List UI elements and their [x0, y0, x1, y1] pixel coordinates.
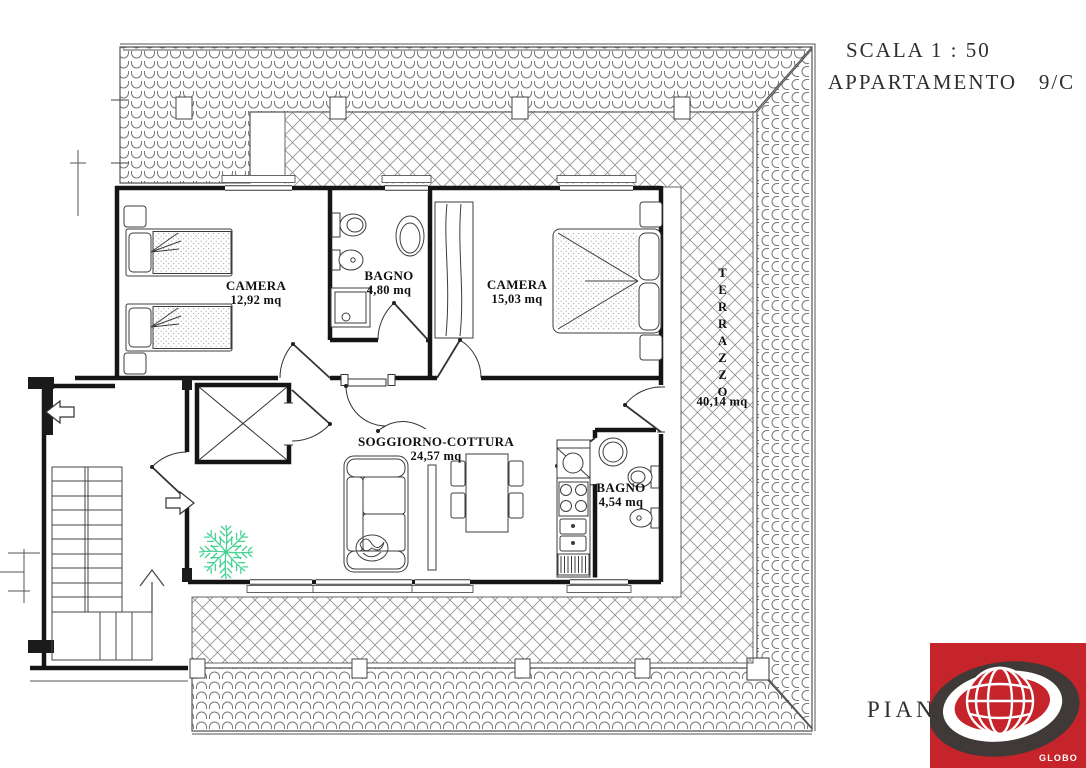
arrow-right-icon [166, 492, 194, 514]
room-name: CAMERA [487, 277, 547, 292]
wardrobe [435, 202, 473, 338]
globe-icon [967, 668, 1033, 734]
globo-logo-text: GLOBO [1039, 753, 1078, 763]
room-label-camera1: CAMERA 12,92 mq [226, 278, 286, 308]
sofa [344, 456, 408, 572]
door-bagno1 [378, 301, 428, 340]
single-beds [124, 206, 232, 374]
double-bed [553, 202, 662, 360]
direction-arrows [46, 401, 194, 514]
room-area: 15,03 mq [487, 292, 547, 307]
roof-band-right [757, 49, 812, 728]
room-area: 12,92 mq [226, 293, 286, 308]
room-label-bagno1: BAGNO 4,80 mq [364, 268, 413, 298]
sideboard [428, 465, 436, 570]
dining-table [451, 454, 523, 532]
room-area: 24,57 mq [358, 449, 514, 464]
kitchen-counter [557, 440, 590, 577]
room-name: BAGNO [364, 268, 413, 283]
room-label-terrazzo: TERRAZZO [715, 266, 730, 402]
globo-logo-graphic [930, 643, 1086, 768]
scale-label: SCALA 1 : 50 [846, 38, 991, 63]
apartment-label: APPARTAMENTO 9/C [828, 70, 1075, 95]
roof-band-bottom [192, 668, 812, 731]
plant-icon [199, 525, 253, 579]
room-name: CAMERA [226, 278, 286, 293]
label-leader [378, 421, 426, 431]
room-name: BAGNO [596, 480, 645, 495]
room-area: 4,80 mq [364, 283, 413, 298]
door-camera1 [280, 342, 330, 378]
room-label-soggiorno: SOGGIORNO-COTTURA 24,57 mq [358, 434, 514, 464]
door-elevator-leaf [292, 390, 332, 441]
room-name: SOGGIORNO-COTTURA [358, 434, 514, 449]
room-label-bagno2: BAGNO 4,54 mq [596, 480, 645, 510]
door-passage [341, 375, 395, 427]
floor-plan-page: SCALA 1 : 50 APPARTAMENTO 9/C CAMERA 12,… [0, 0, 1086, 768]
door-terrace [623, 387, 661, 432]
room-label-camera2: CAMERA 15,03 mq [487, 277, 547, 307]
room-area-terrazzo: 40,14 mq [696, 395, 747, 410]
staircase [52, 467, 164, 660]
door-camera2 [437, 338, 481, 378]
room-area: 4,54 mq [596, 495, 645, 510]
globo-logo: GLOBO [930, 643, 1086, 768]
elevator-shaft [197, 385, 293, 462]
floor-plan-drawing [0, 0, 1086, 768]
